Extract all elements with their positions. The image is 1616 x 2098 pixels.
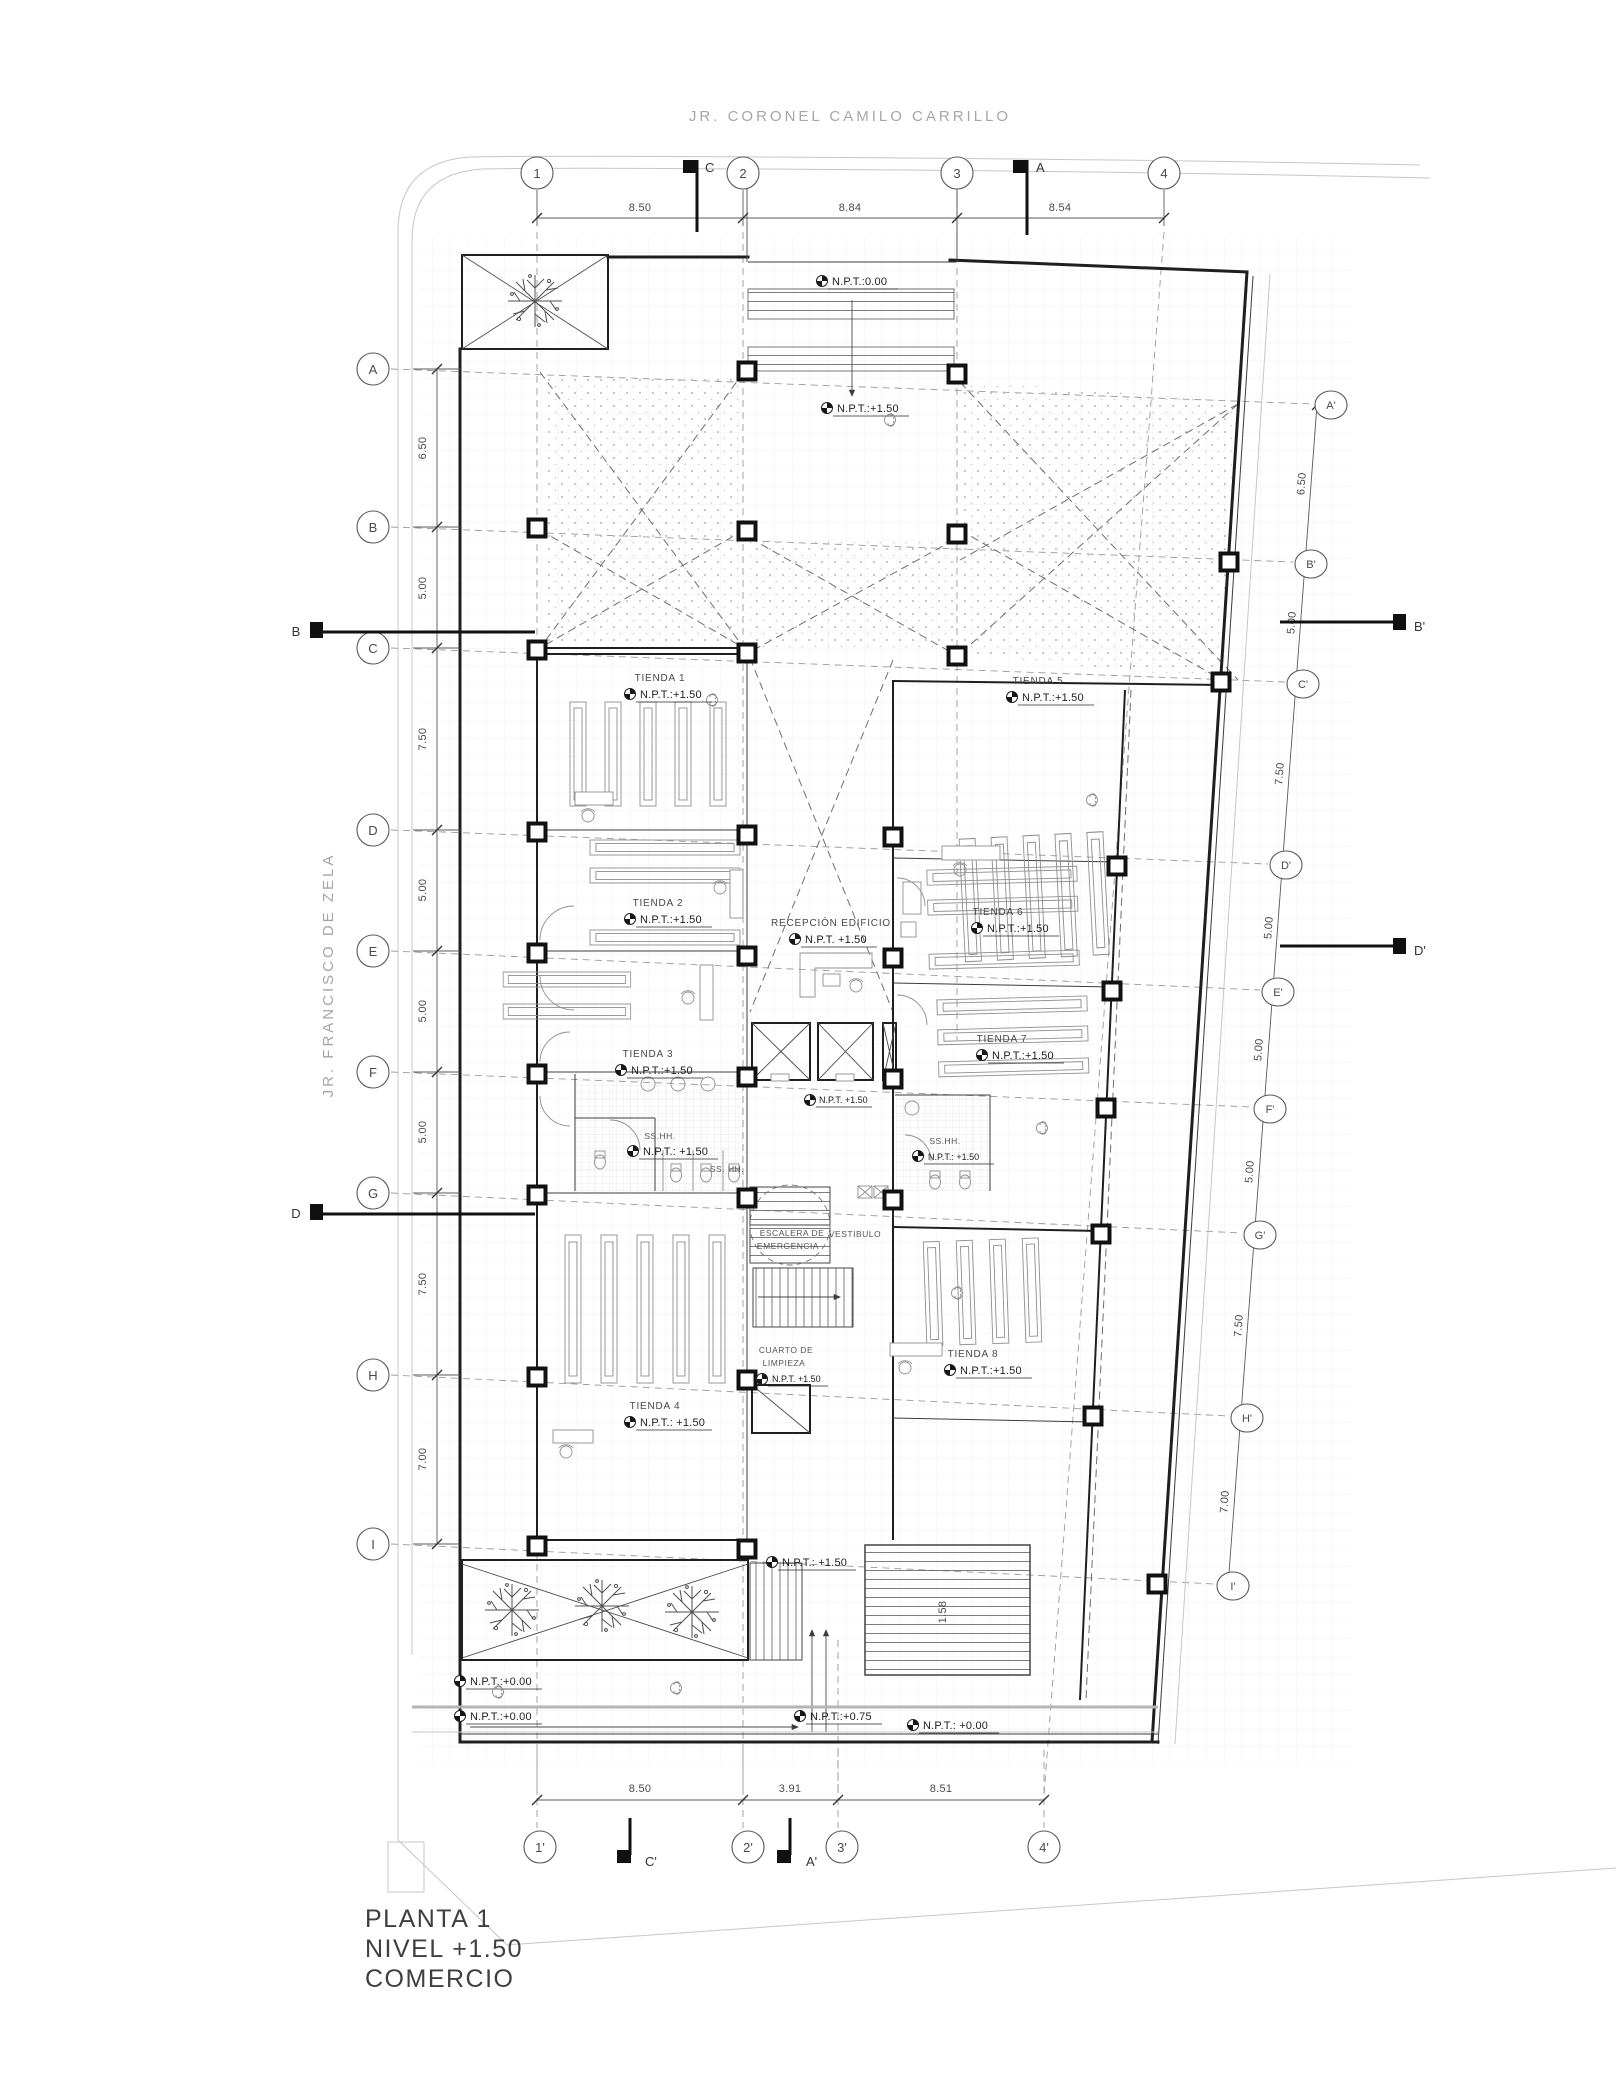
axis-bubble-3: 3 (953, 166, 960, 181)
axis-bubble-b: B (369, 520, 378, 535)
level-marker-icon (455, 1711, 466, 1722)
level-marker-icon (817, 276, 828, 287)
dim-right-e-f: 5.00 (1252, 1038, 1266, 1061)
svg-text:N.P.T.:+1.50: N.P.T.:+1.50 (960, 1365, 1022, 1377)
room-label-escalera-2: EMERGENCIA (757, 1241, 819, 1251)
dim-left-a-b: 6.50 (417, 437, 429, 460)
svg-text:N.P.T.:+1.50: N.P.T.:+1.50 (631, 1065, 693, 1077)
room-label-vestibulo: VESTIBULO (829, 1229, 881, 1239)
svg-text:N.P.T.:+0.00: N.P.T.:+0.00 (470, 1711, 532, 1723)
room-label-tienda-2: TIENDA 2 (633, 898, 684, 909)
svg-text:D: D (291, 1206, 300, 1221)
dim-left-e-f: 5.00 (417, 1000, 429, 1023)
dim-left-g-h: 7.50 (417, 1273, 429, 1296)
dim-stair: 1.58 (937, 1601, 949, 1624)
level-marker-icon (805, 1095, 816, 1106)
section-marker-c-top: C (683, 160, 714, 232)
axis-bubble-g: G (368, 1186, 378, 1201)
svg-text:N.P.T.:+0.75: N.P.T.:+0.75 (810, 1711, 872, 1723)
svg-text:N.P.T.:+1.50: N.P.T.:+1.50 (1022, 692, 1084, 704)
dimension-row-bottom: 8.50 3.91 8.51 1' 2' 3' 4' C' A' (524, 1750, 1060, 1869)
dim-top-3-4: 8.54 (1049, 202, 1072, 214)
level-marker-icon (790, 934, 801, 945)
dim-right-h-i: 7.00 (1218, 1490, 1232, 1513)
dim-right-d-e: 5.00 (1262, 916, 1276, 939)
svg-text:N.P.T.:+1.50: N.P.T.:+1.50 (837, 403, 899, 415)
axis-bubble-e: E (369, 944, 378, 959)
axis-bubble-ip: I' (1230, 1581, 1235, 1593)
svg-text:N.P.T.: +1.50: N.P.T.: +1.50 (640, 1417, 705, 1429)
room-label-tienda-4: TIENDA 4 (630, 1401, 681, 1412)
level-marker-icon (908, 1720, 919, 1731)
svg-text:N.P.T.:0.00: N.P.T.:0.00 (832, 276, 887, 288)
svg-text:N.P.T.:+1.50: N.P.T.:+1.50 (640, 689, 702, 701)
axis-bubble-a: A (369, 362, 378, 377)
axis-bubble-ep: E' (1273, 987, 1282, 999)
sheet-title-line3: COMERCIO (365, 1965, 515, 1993)
room-label-cuarto-2: LIMPIEZA (763, 1358, 806, 1368)
axis-bubble-bp: B' (1306, 559, 1315, 571)
axis-bubble-3p: 3' (837, 1840, 847, 1855)
dim-left-b-c: 5.00 (417, 577, 429, 600)
axis-bubble-d: D (368, 823, 377, 838)
axis-bubble-2p: 2' (743, 1840, 753, 1855)
level-marker-icon (822, 403, 833, 414)
axis-bubble-1p: 1' (535, 1840, 545, 1855)
svg-text:N.P.T.:+1.50: N.P.T.:+1.50 (640, 914, 702, 926)
axis-bubble-1: 1 (533, 166, 540, 181)
dim-bottom-3-4: 8.51 (930, 1783, 953, 1795)
dim-left-c-d: 7.50 (417, 728, 429, 751)
street-name-left: JR. FRANCISCO DE ZELA (320, 853, 337, 1098)
exit-stair-small (750, 1563, 802, 1660)
level-marker-icon (628, 1146, 639, 1157)
axis-bubble-4p: 4' (1039, 1840, 1049, 1855)
level-marker-icon (455, 1676, 466, 1687)
section-marker-c-bottom: C' (617, 1818, 657, 1869)
axis-bubble-i: I (371, 1537, 375, 1552)
svg-text:A': A' (806, 1854, 817, 1869)
sheet-title-line2: NIVEL +1.50 (365, 1935, 523, 1963)
level-marker-icon (795, 1711, 806, 1722)
sheet-title-line1: PLANTA 1 (365, 1905, 492, 1933)
dim-right-a-b: 6.50 (1295, 472, 1309, 495)
svg-text:N.P.T.:+1.50: N.P.T.:+1.50 (987, 923, 1049, 935)
level-marker-icon (1007, 692, 1018, 703)
level-marker-icon (625, 914, 636, 925)
dim-left-f-g: 5.00 (417, 1121, 429, 1144)
level-marker-icon (757, 1374, 768, 1385)
axis-bubble-fp: F' (1266, 1104, 1275, 1116)
axis-bubble-c: C (368, 641, 377, 656)
svg-text:N.P.T.: +0.00: N.P.T.: +0.00 (923, 1720, 988, 1732)
street-name-top: JR. CORONEL CAMILO CARRILLO (689, 108, 1011, 125)
dim-bottom-1-2: 8.50 (629, 1783, 652, 1795)
room-label-sshh-left-small: SS. HH. (710, 1164, 744, 1174)
axis-bubble-h: H (368, 1368, 377, 1383)
level-marker-icon (767, 1557, 778, 1568)
svg-text:N.P.T.: +1.50: N.P.T.: +1.50 (782, 1557, 847, 1569)
svg-text:N.P.T.: +1.50: N.P.T.: +1.50 (643, 1146, 708, 1158)
axis-bubble-4: 4 (1160, 166, 1167, 181)
room-label-sshh-left: SS.HH. (644, 1131, 675, 1141)
svg-text:N.P.T. +1.50: N.P.T. +1.50 (772, 1374, 821, 1384)
room-label-tienda-1: TIENDA 1 (635, 673, 686, 684)
dim-right-g-h: 7.50 (1232, 1314, 1246, 1337)
level-marker-icon (616, 1065, 627, 1076)
level-marker-icon (945, 1365, 956, 1376)
room-label-escalera-1: ESCALERA DE (760, 1228, 825, 1238)
svg-text:N.P.T. +1.50: N.P.T. +1.50 (805, 934, 867, 946)
level-marker-icon (972, 923, 983, 934)
dim-left-d-e: 5.00 (417, 879, 429, 902)
dim-left-h-i: 7.00 (417, 1448, 429, 1471)
svg-text:C': C' (645, 1854, 657, 1869)
level-marker-icon (625, 1417, 636, 1428)
room-label-tienda-7: TIENDA 7 (977, 1034, 1028, 1045)
main-stair (753, 1268, 853, 1327)
floor-plan-sheet: JR. CORONEL CAMILO CARRILLO JR. FRANCISC… (0, 0, 1616, 2098)
level-marker-icon (977, 1050, 988, 1061)
svg-text:N.P.T.:+1.50: N.P.T.:+1.50 (992, 1050, 1054, 1062)
dim-right-f-g: 5.00 (1243, 1160, 1257, 1183)
svg-text:A: A (1036, 160, 1045, 175)
svg-text:D': D' (1414, 943, 1426, 958)
room-label-tienda-3: TIENDA 3 (623, 1049, 674, 1060)
room-label-sshh-right: SS.HH. (929, 1136, 960, 1146)
axis-bubble-gp: G' (1255, 1230, 1266, 1242)
svg-text:C: C (705, 160, 714, 175)
axis-bubble-f: F (369, 1065, 377, 1080)
axis-bubble-2: 2 (739, 166, 746, 181)
dim-top-1-2: 8.50 (629, 202, 652, 214)
title-block: PLANTA 1 NIVEL +1.50 COMERCIO (365, 1905, 523, 1993)
axis-bubble-hp: H' (1242, 1413, 1252, 1425)
axis-bubble-cp: C' (1298, 679, 1308, 691)
room-label-tienda-5: TIENDA 5 (1013, 676, 1064, 687)
svg-text:B: B (292, 624, 301, 639)
axis-bubble-dp: D' (1281, 860, 1291, 872)
dim-top-2-3: 8.84 (839, 202, 862, 214)
level-marker-icon (913, 1151, 924, 1162)
section-marker-a-bottom: A' (777, 1818, 817, 1869)
svg-text:N.P.T. +1.50: N.P.T. +1.50 (819, 1095, 868, 1105)
axis-bubble-ap: A' (1326, 400, 1335, 412)
room-label-tienda-8: TIENDA 8 (948, 1349, 999, 1360)
dim-right-c-d: 7.50 (1273, 762, 1287, 785)
room-label-cuarto-1: CUARTO DE (759, 1345, 813, 1355)
room-label-tienda-6: TIENDA 6 (973, 907, 1024, 918)
svg-text:B': B' (1414, 619, 1425, 634)
dim-bottom-2-3: 3.91 (779, 1783, 802, 1795)
room-label-recepcion: RECEPCIÓN EDIFICIO (771, 916, 891, 929)
level-marker-icon (625, 689, 636, 700)
svg-text:N.P.T.: +1.50: N.P.T.: +1.50 (928, 1152, 979, 1162)
